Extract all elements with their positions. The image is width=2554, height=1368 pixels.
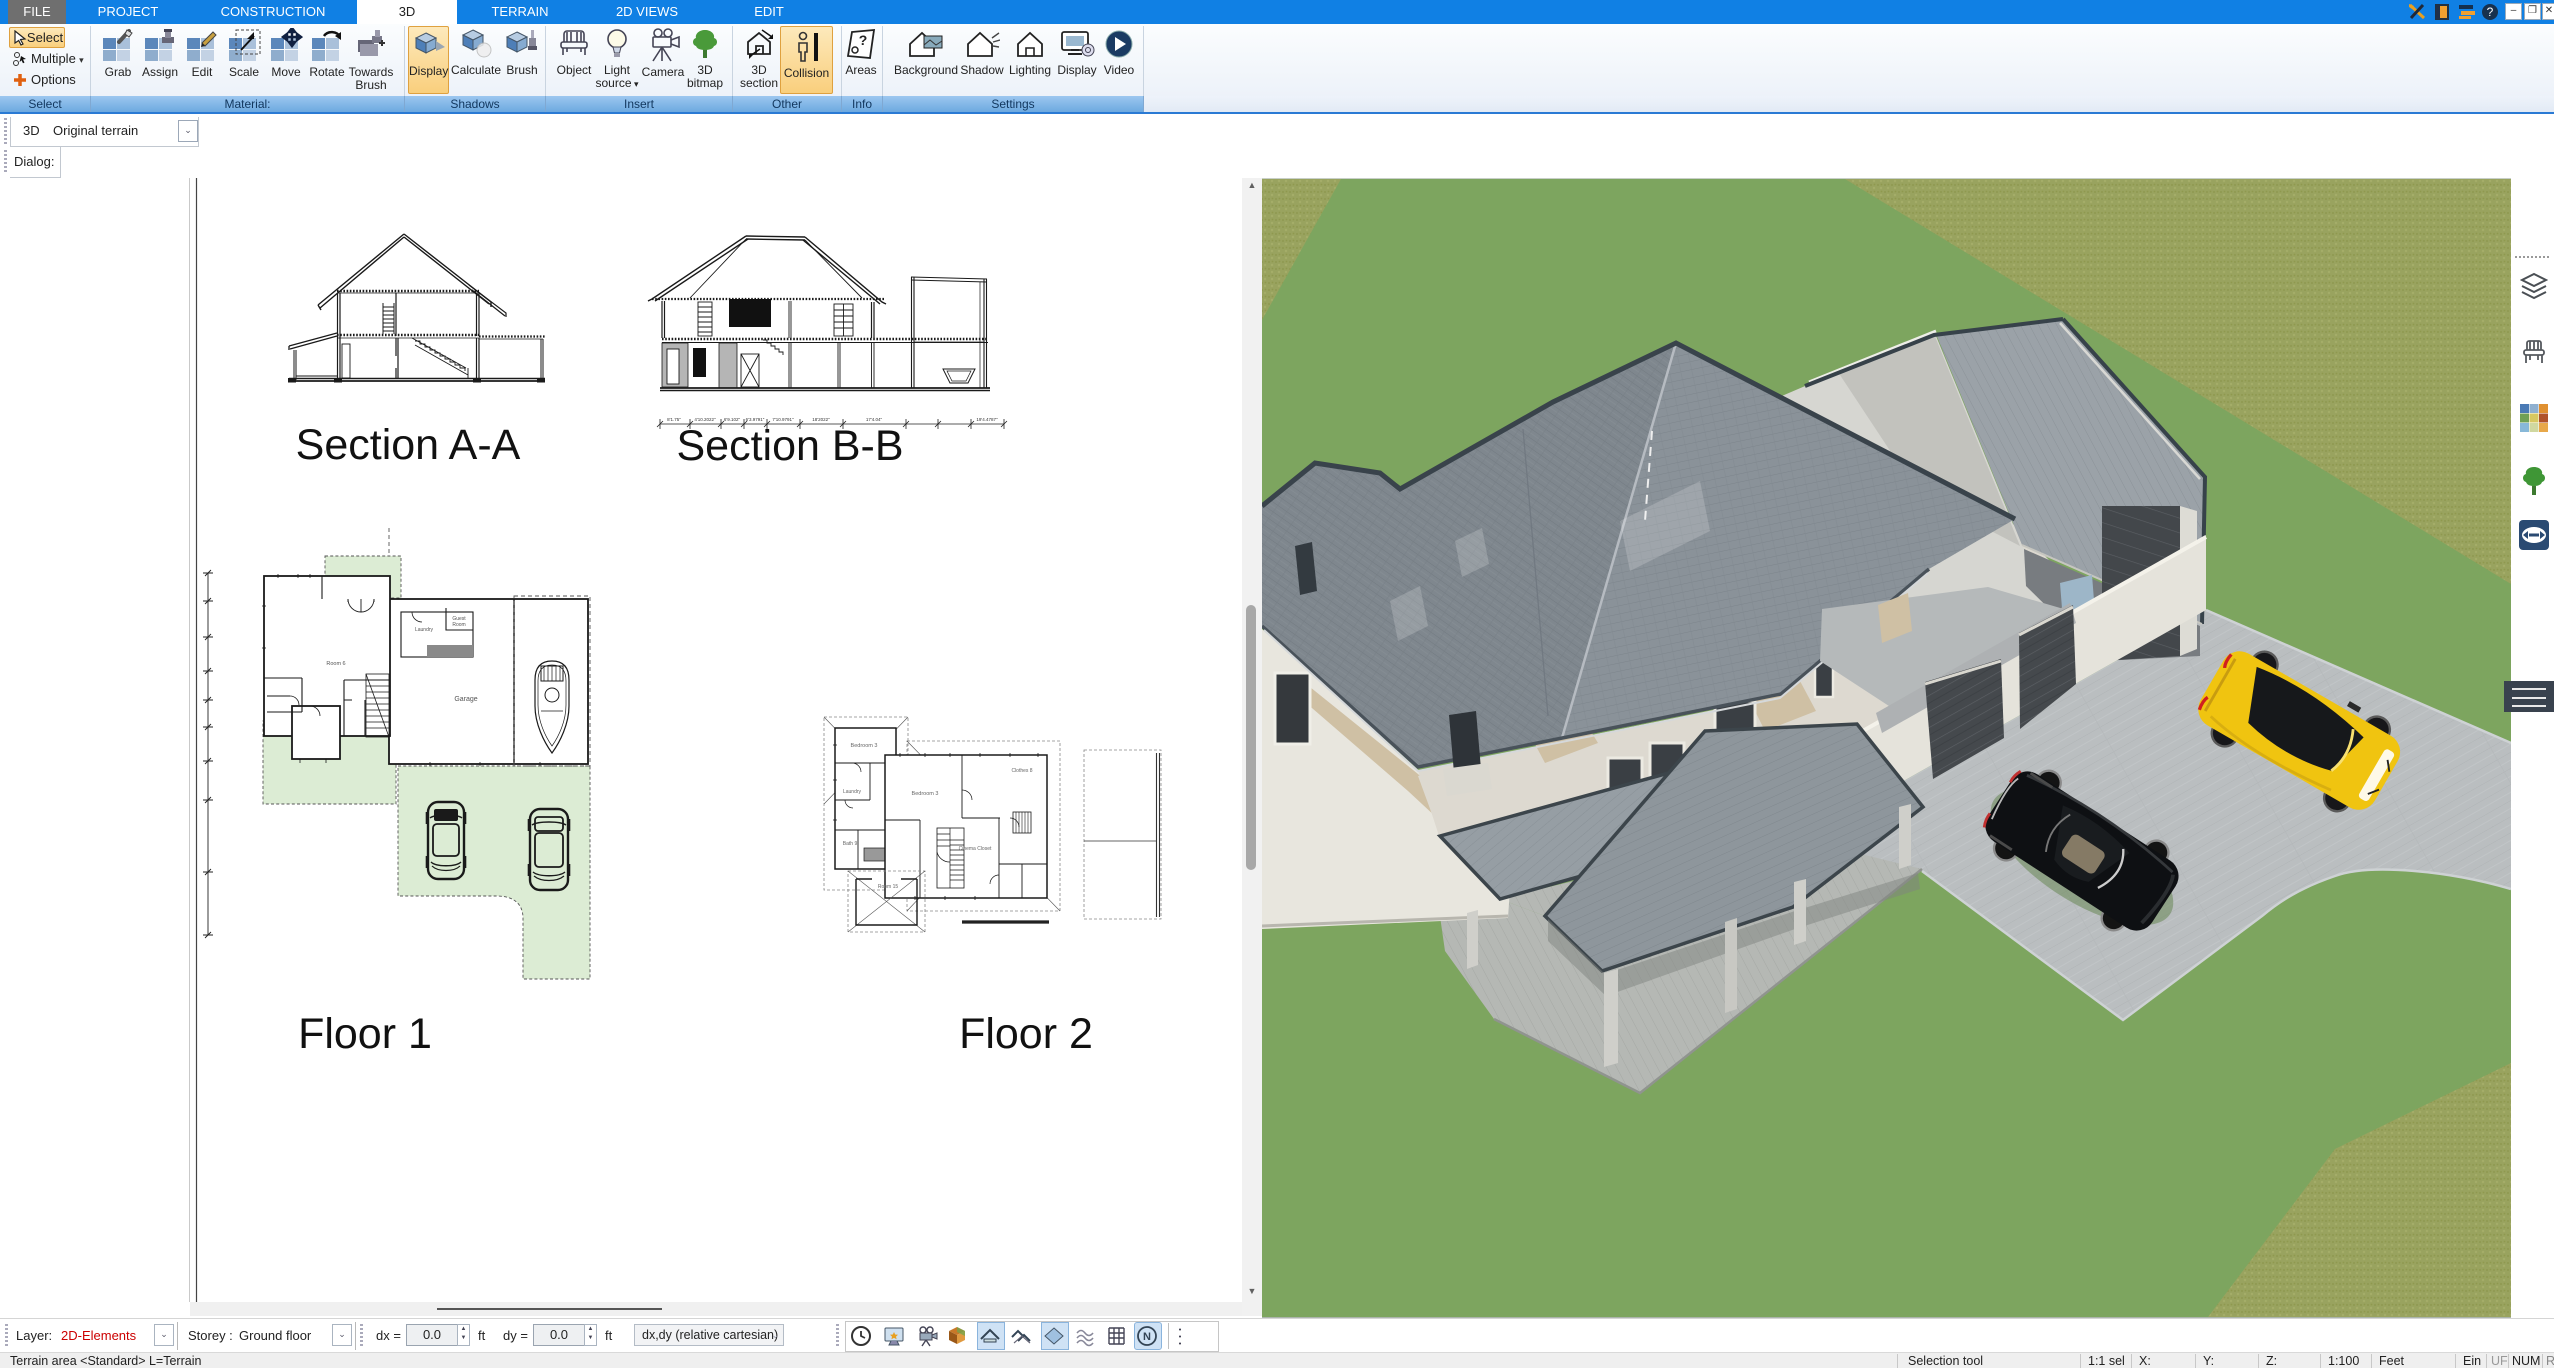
svg-text:?: ? <box>859 32 868 48</box>
svg-text:Clothes 8: Clothes 8 <box>1011 768 1032 774</box>
svg-text:Bedroom 3: Bedroom 3 <box>912 791 939 797</box>
svg-text:?: ? <box>2487 5 2494 19</box>
svg-text:Cinema Closet: Cinema Closet <box>959 846 992 852</box>
svg-text:Section B-B: Section B-B <box>676 422 903 470</box>
svg-text:Section A-A: Section A-A <box>296 421 521 469</box>
svg-text:Bath 9: Bath 9 <box>843 841 858 847</box>
svg-text:Floor 1: Floor 1 <box>298 1010 432 1058</box>
svg-text:Laundry: Laundry <box>415 627 434 633</box>
svg-text:Laundry: Laundry <box>843 789 862 795</box>
svg-text:Floor 2: Floor 2 <box>959 1010 1093 1058</box>
svg-text:Bedroom 3: Bedroom 3 <box>851 743 878 749</box>
svg-text:N: N <box>1143 1331 1151 1343</box>
svg-text:Room 15: Room 15 <box>878 884 899 890</box>
svg-text:19'4.4787": 19'4.4787" <box>976 417 998 422</box>
svg-text:Garage: Garage <box>454 696 477 703</box>
svg-text:Room 6: Room 6 <box>326 661 345 667</box>
svg-text:Room: Room <box>452 622 465 628</box>
